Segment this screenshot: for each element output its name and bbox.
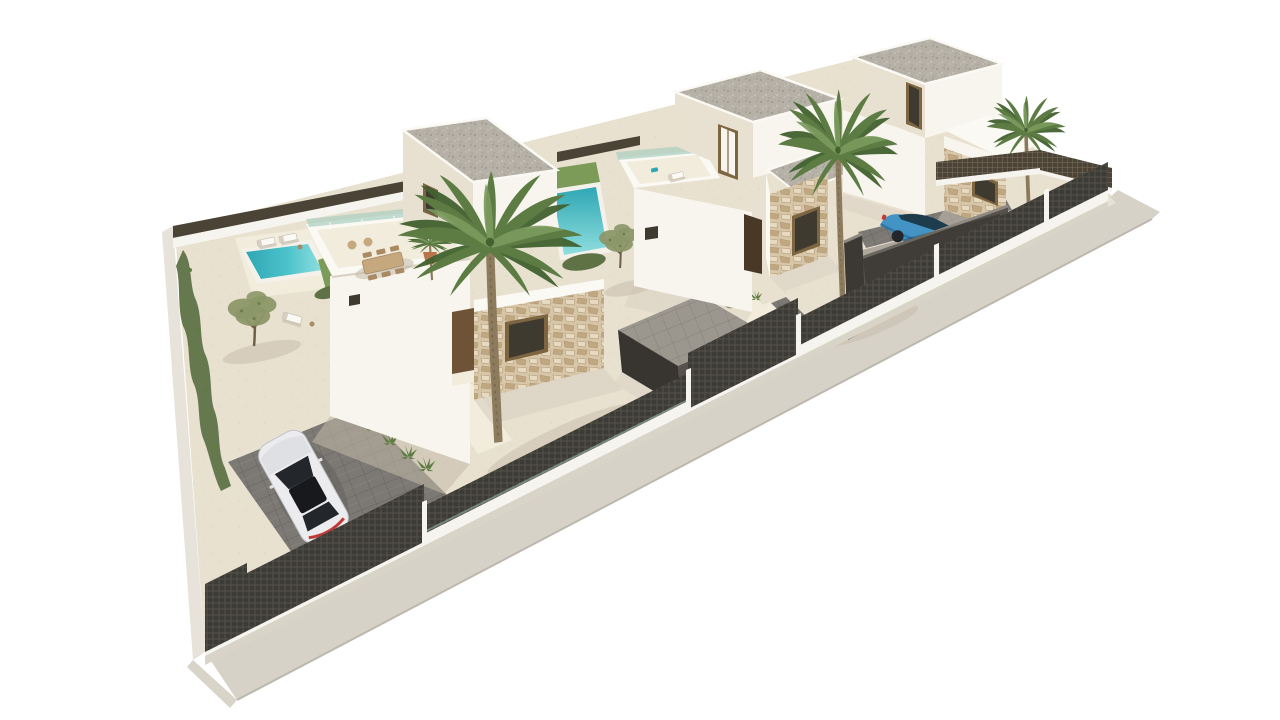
pouf xyxy=(348,241,357,250)
entry-door xyxy=(744,214,762,274)
pouf xyxy=(364,238,373,247)
render-page xyxy=(0,0,1280,720)
architectural-render xyxy=(0,0,1280,720)
entry-door xyxy=(452,308,474,380)
